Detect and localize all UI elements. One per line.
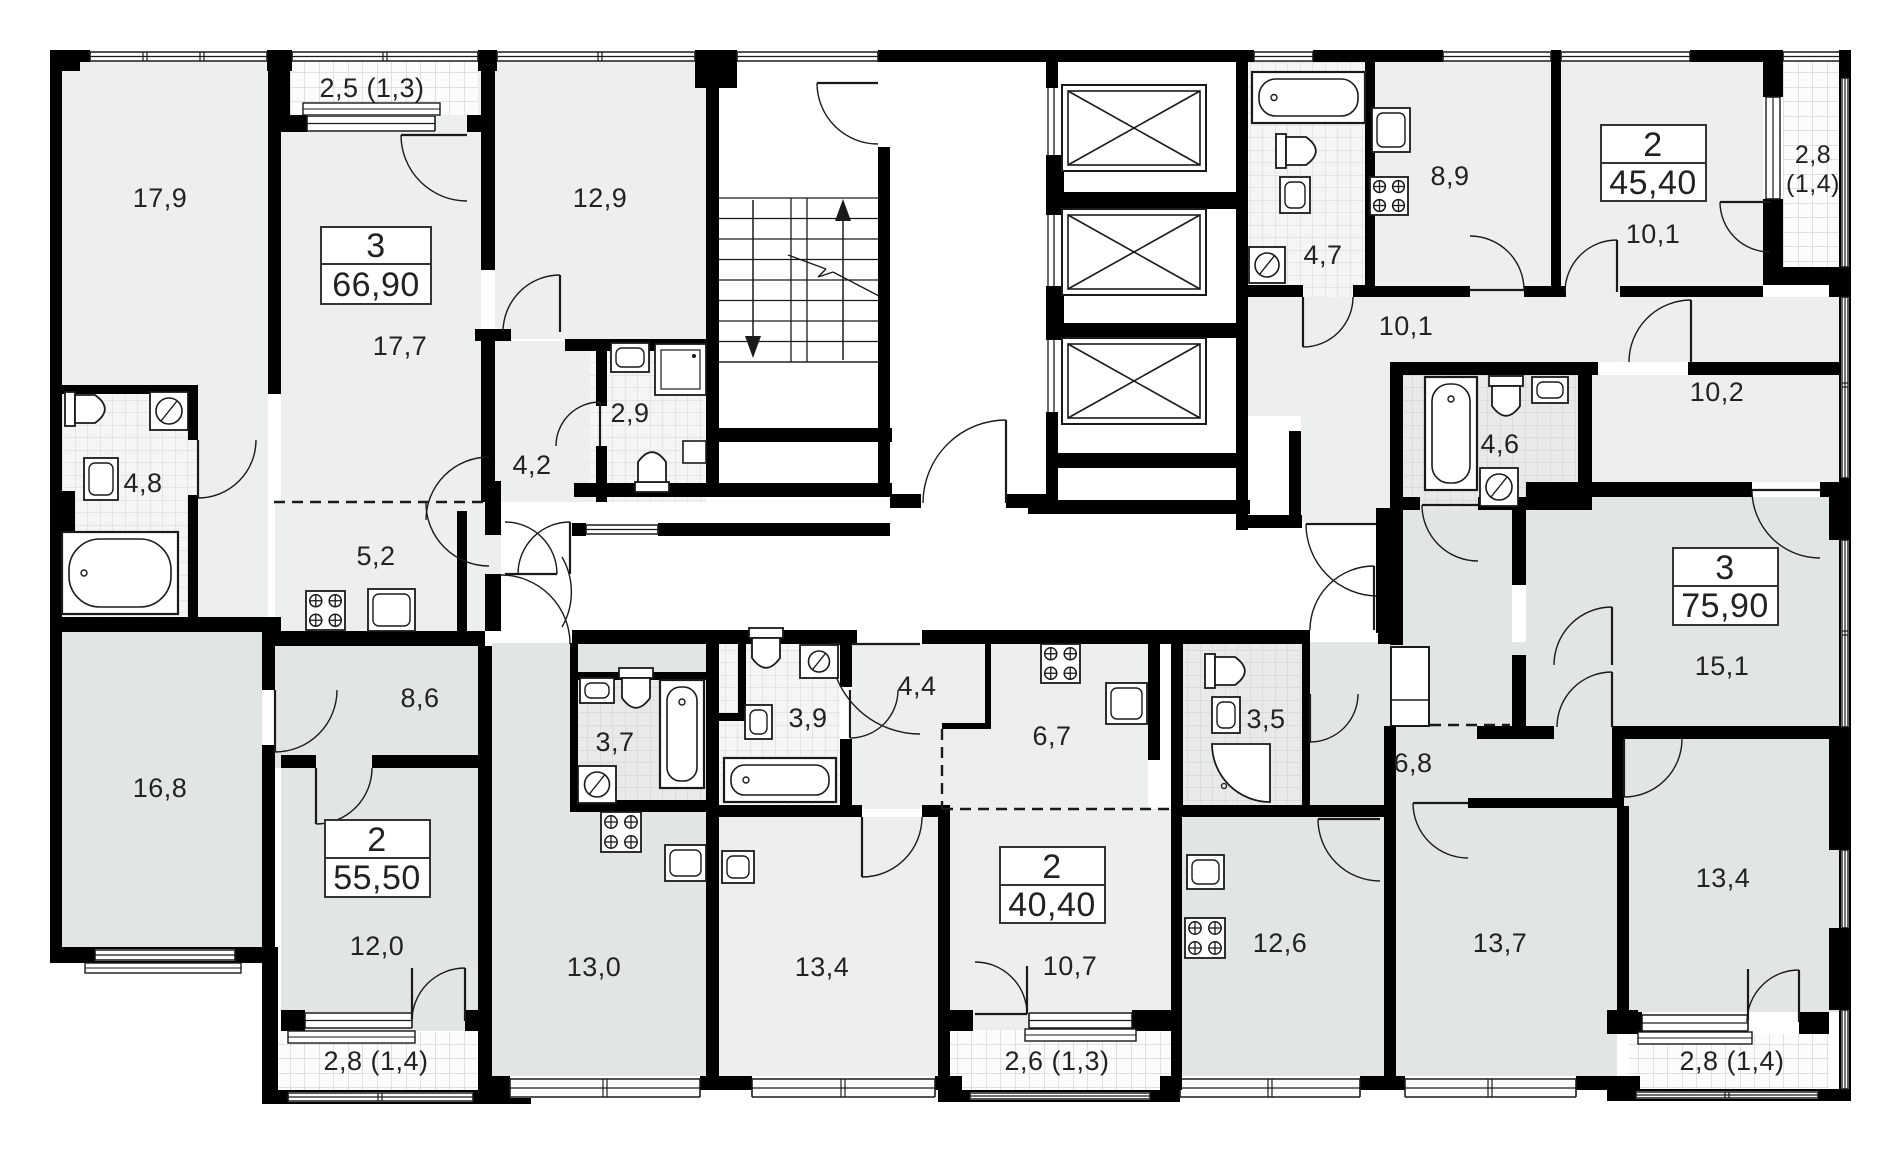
- svg-text:10,1: 10,1: [1626, 219, 1681, 249]
- svg-text:2,8: 2,8: [1795, 141, 1831, 169]
- svg-text:55,50: 55,50: [333, 859, 421, 897]
- svg-text:40,40: 40,40: [1008, 886, 1096, 924]
- svg-text:2: 2: [1643, 126, 1662, 164]
- svg-text:3: 3: [366, 227, 385, 265]
- svg-text:16,8: 16,8: [133, 773, 188, 803]
- svg-text:3,9: 3,9: [788, 703, 827, 733]
- svg-text:45,40: 45,40: [1609, 164, 1697, 202]
- svg-text:4,7: 4,7: [1303, 240, 1342, 270]
- svg-text:2: 2: [367, 821, 386, 859]
- svg-text:15,1: 15,1: [1695, 651, 1750, 681]
- svg-text:66,90: 66,90: [332, 266, 420, 304]
- svg-text:12,0: 12,0: [350, 931, 405, 961]
- svg-text:2: 2: [1042, 848, 1061, 886]
- svg-text:2,5 (1,3): 2,5 (1,3): [319, 73, 424, 103]
- svg-text:5,2: 5,2: [356, 541, 395, 571]
- svg-text:12,6: 12,6: [1253, 928, 1308, 958]
- svg-text:6,8: 6,8: [1393, 748, 1432, 778]
- svg-text:10,7: 10,7: [1043, 951, 1098, 981]
- svg-text:2,9: 2,9: [610, 398, 649, 428]
- svg-text:3: 3: [1715, 549, 1734, 587]
- svg-text:8,6: 8,6: [400, 683, 439, 713]
- svg-text:13,0: 13,0: [567, 952, 622, 982]
- svg-text:10,2: 10,2: [1690, 377, 1745, 407]
- svg-text:4,8: 4,8: [123, 468, 162, 498]
- svg-text:2,8 (1,4): 2,8 (1,4): [1679, 1046, 1784, 1076]
- svg-text:13,7: 13,7: [1473, 928, 1528, 958]
- svg-text:4,4: 4,4: [897, 671, 936, 701]
- svg-text:6,7: 6,7: [1032, 721, 1071, 751]
- svg-text:17,9: 17,9: [133, 183, 188, 213]
- svg-text:2,6 (1,3): 2,6 (1,3): [1004, 1046, 1109, 1076]
- svg-text:13,4: 13,4: [1696, 863, 1751, 893]
- svg-text:(1,4): (1,4): [1786, 170, 1840, 198]
- svg-text:3,7: 3,7: [595, 727, 634, 757]
- svg-text:10,1: 10,1: [1379, 311, 1434, 341]
- svg-text:4,6: 4,6: [1480, 429, 1519, 459]
- svg-text:8,9: 8,9: [1430, 161, 1469, 191]
- svg-text:2,8 (1,4): 2,8 (1,4): [323, 1046, 428, 1076]
- svg-text:75,90: 75,90: [1681, 587, 1769, 625]
- svg-text:12,9: 12,9: [573, 183, 628, 213]
- svg-text:4,2: 4,2: [512, 450, 551, 480]
- svg-text:17,7: 17,7: [373, 331, 428, 361]
- svg-text:3,5: 3,5: [1246, 704, 1285, 734]
- svg-text:13,4: 13,4: [795, 952, 850, 982]
